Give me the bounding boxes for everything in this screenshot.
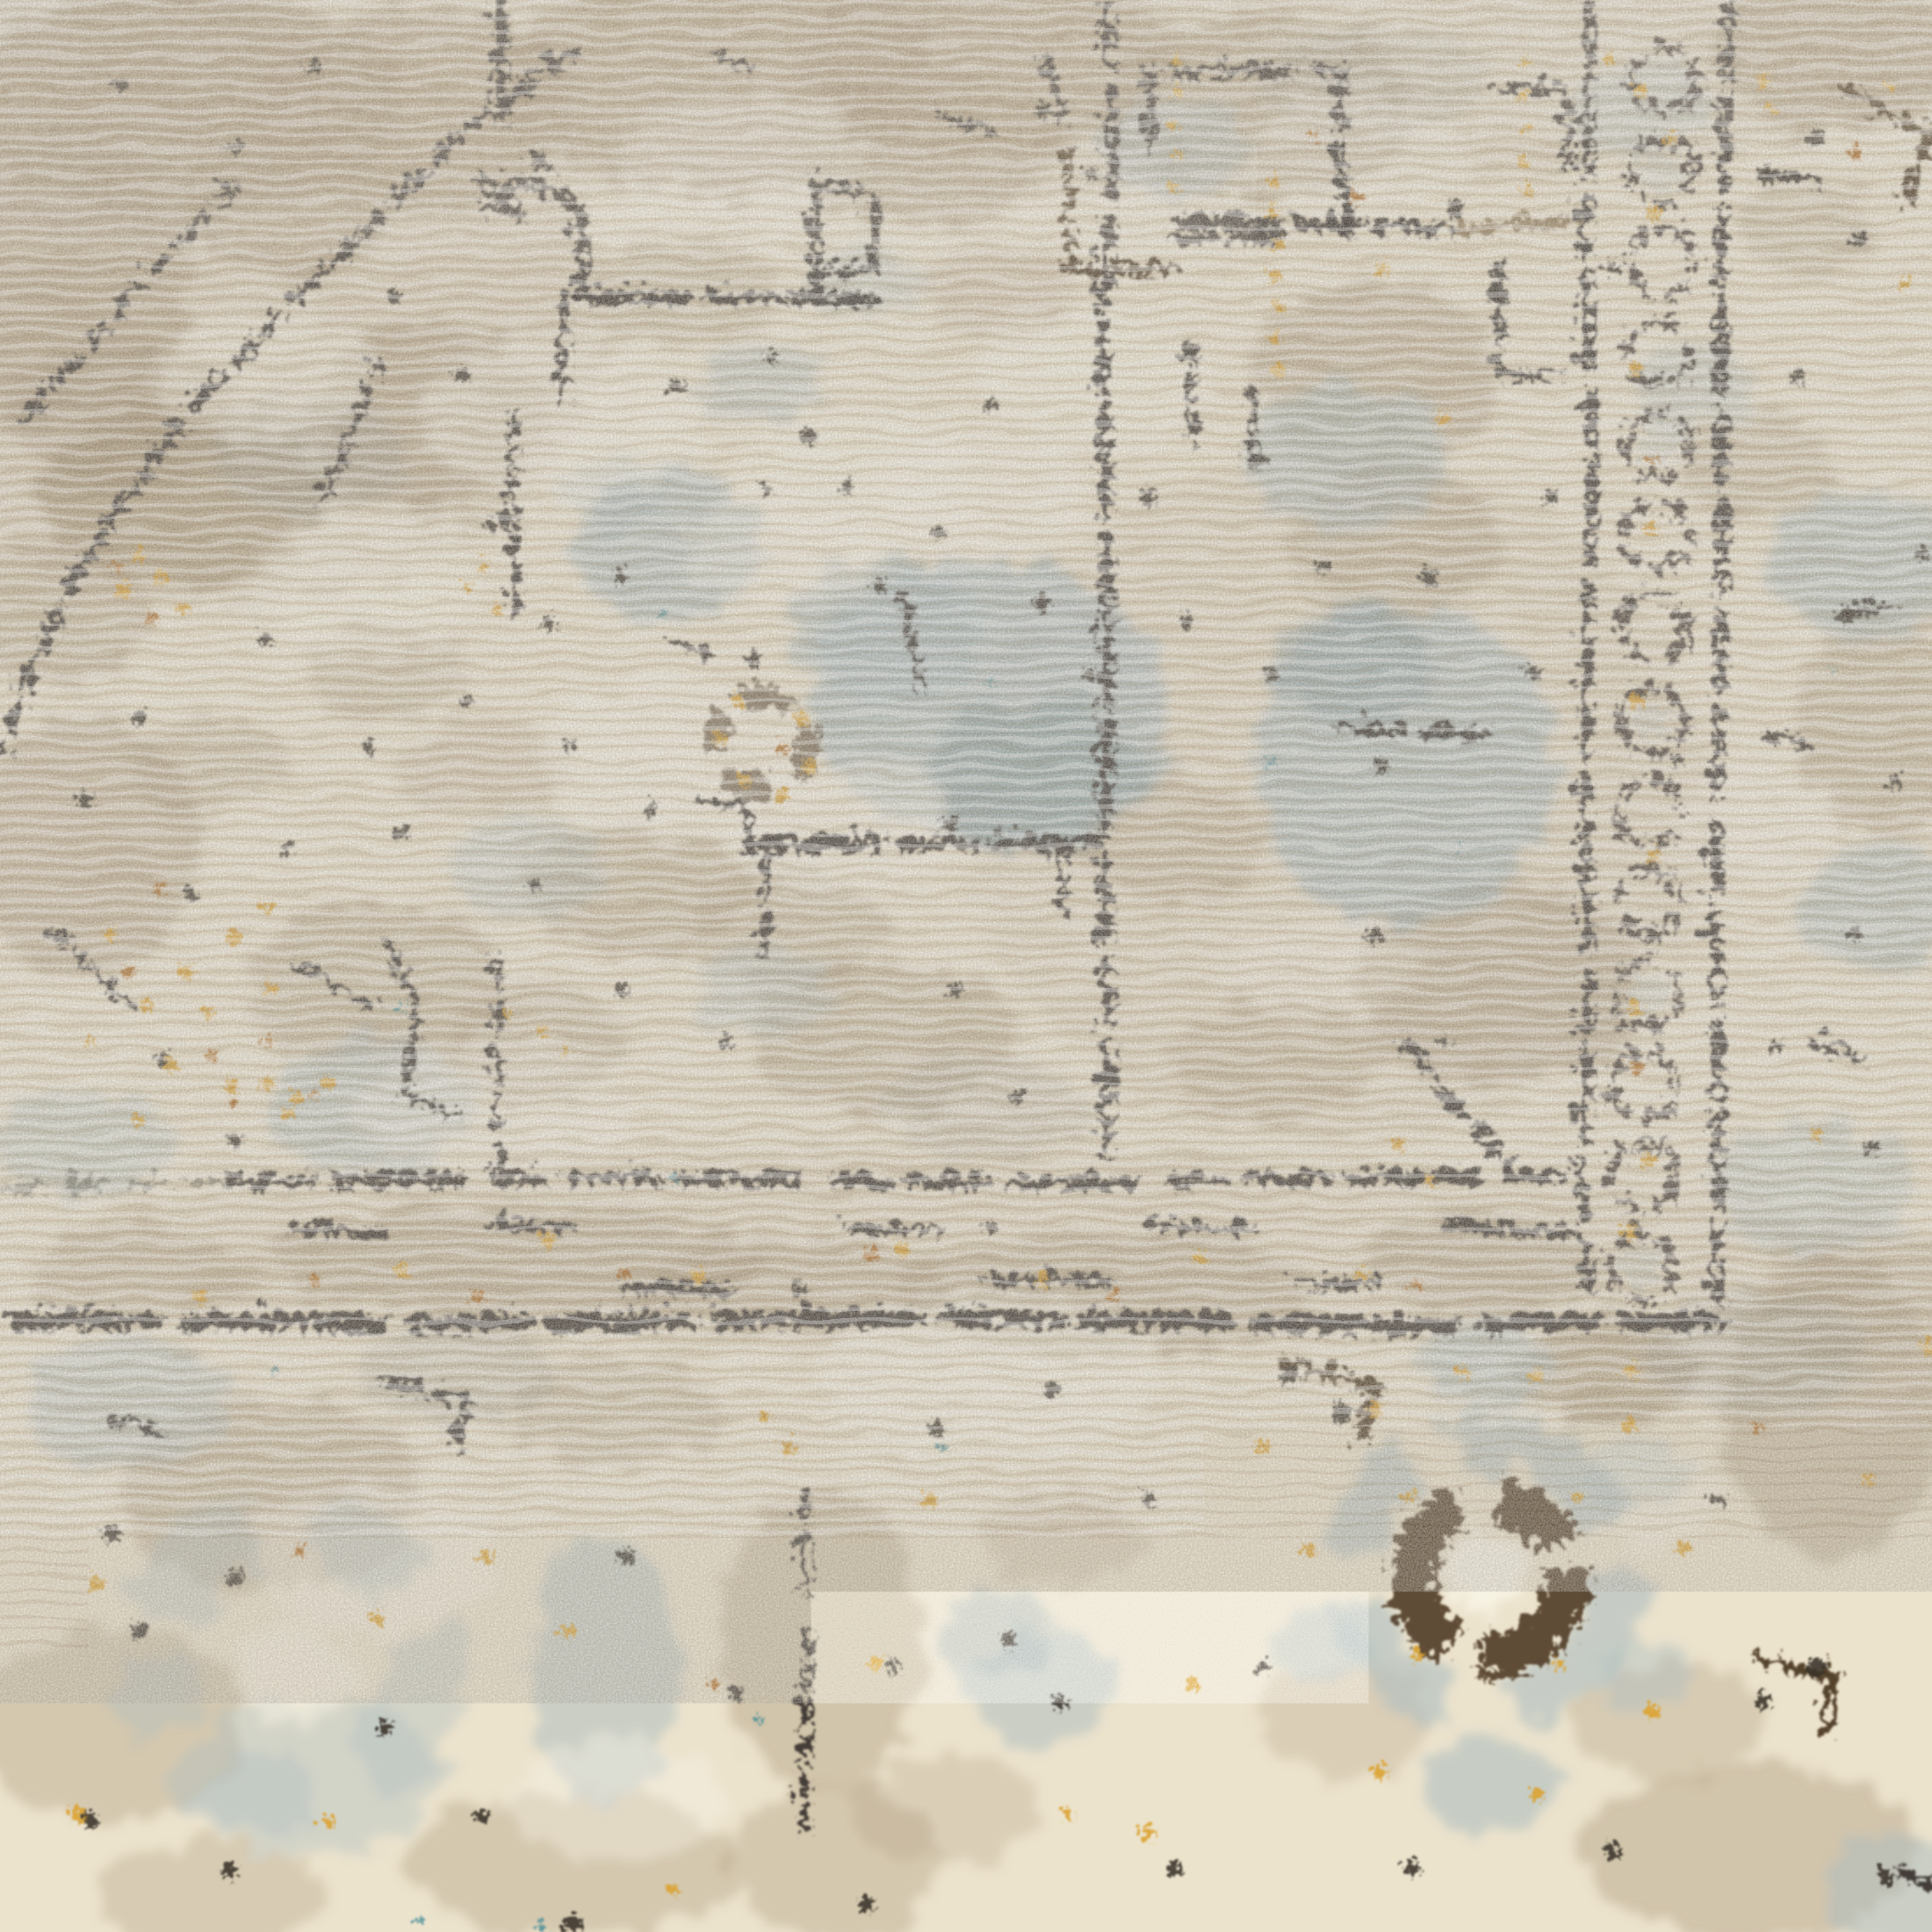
rug-texture-canvas	[0, 0, 1932, 1932]
rug-close-up-photo	[0, 0, 1932, 1932]
fiber-grain-dark	[0, 0, 1932, 1932]
